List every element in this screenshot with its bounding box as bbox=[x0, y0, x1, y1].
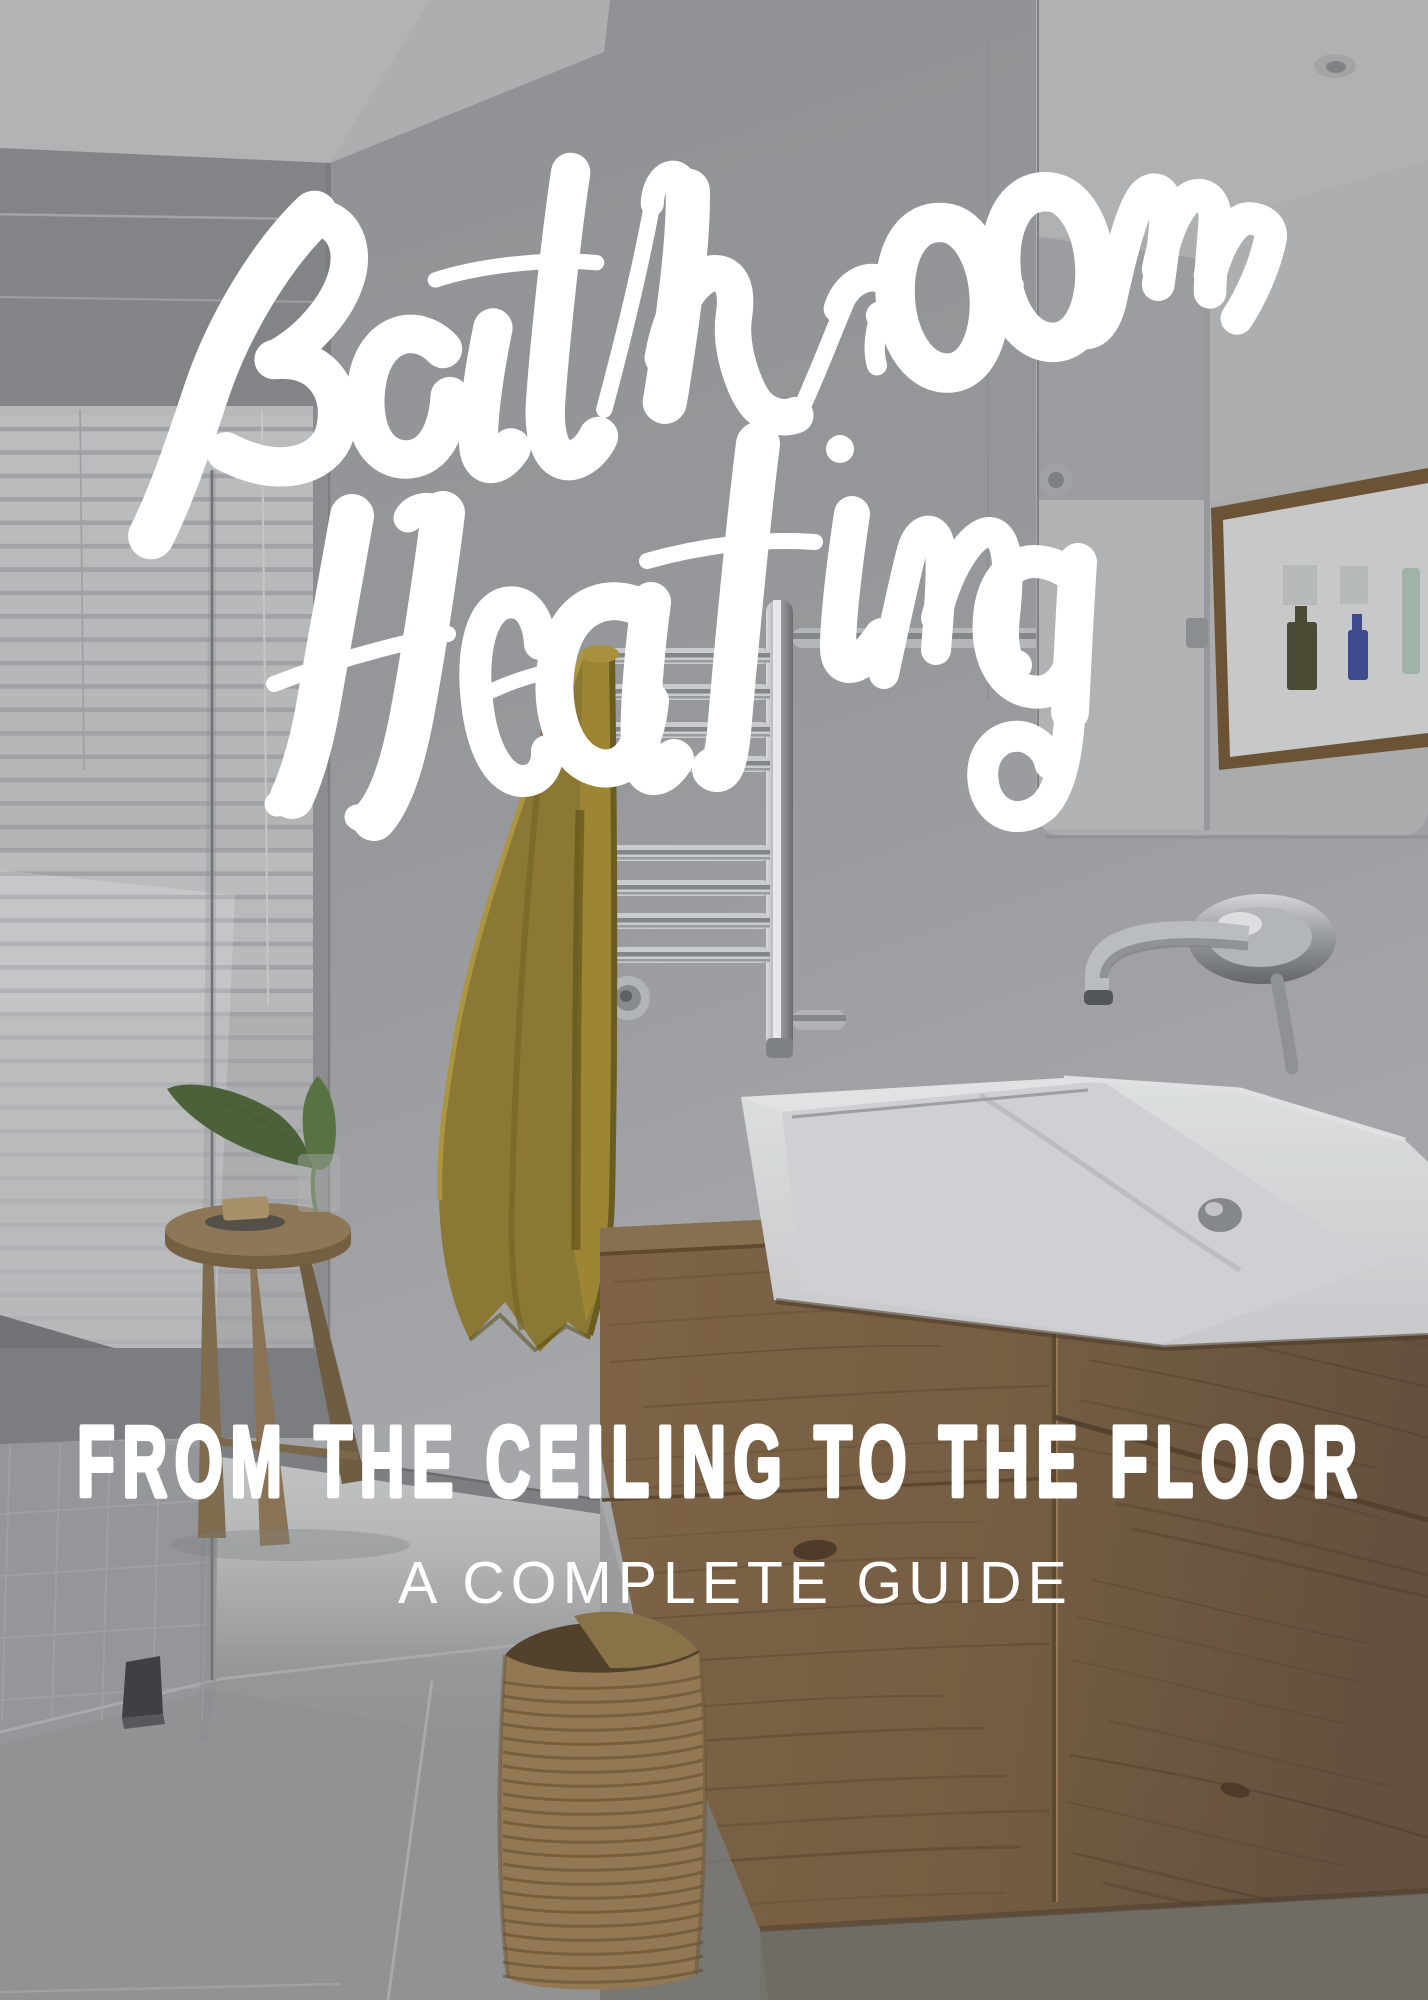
svg-text:FROM THE CEILING TO THE FLOOR: FROM THE CEILING TO THE FLOOR bbox=[77, 1406, 1364, 1518]
svg-text:A COMPLETE GUIDE: A COMPLETE GUIDE bbox=[398, 1550, 1073, 1616]
